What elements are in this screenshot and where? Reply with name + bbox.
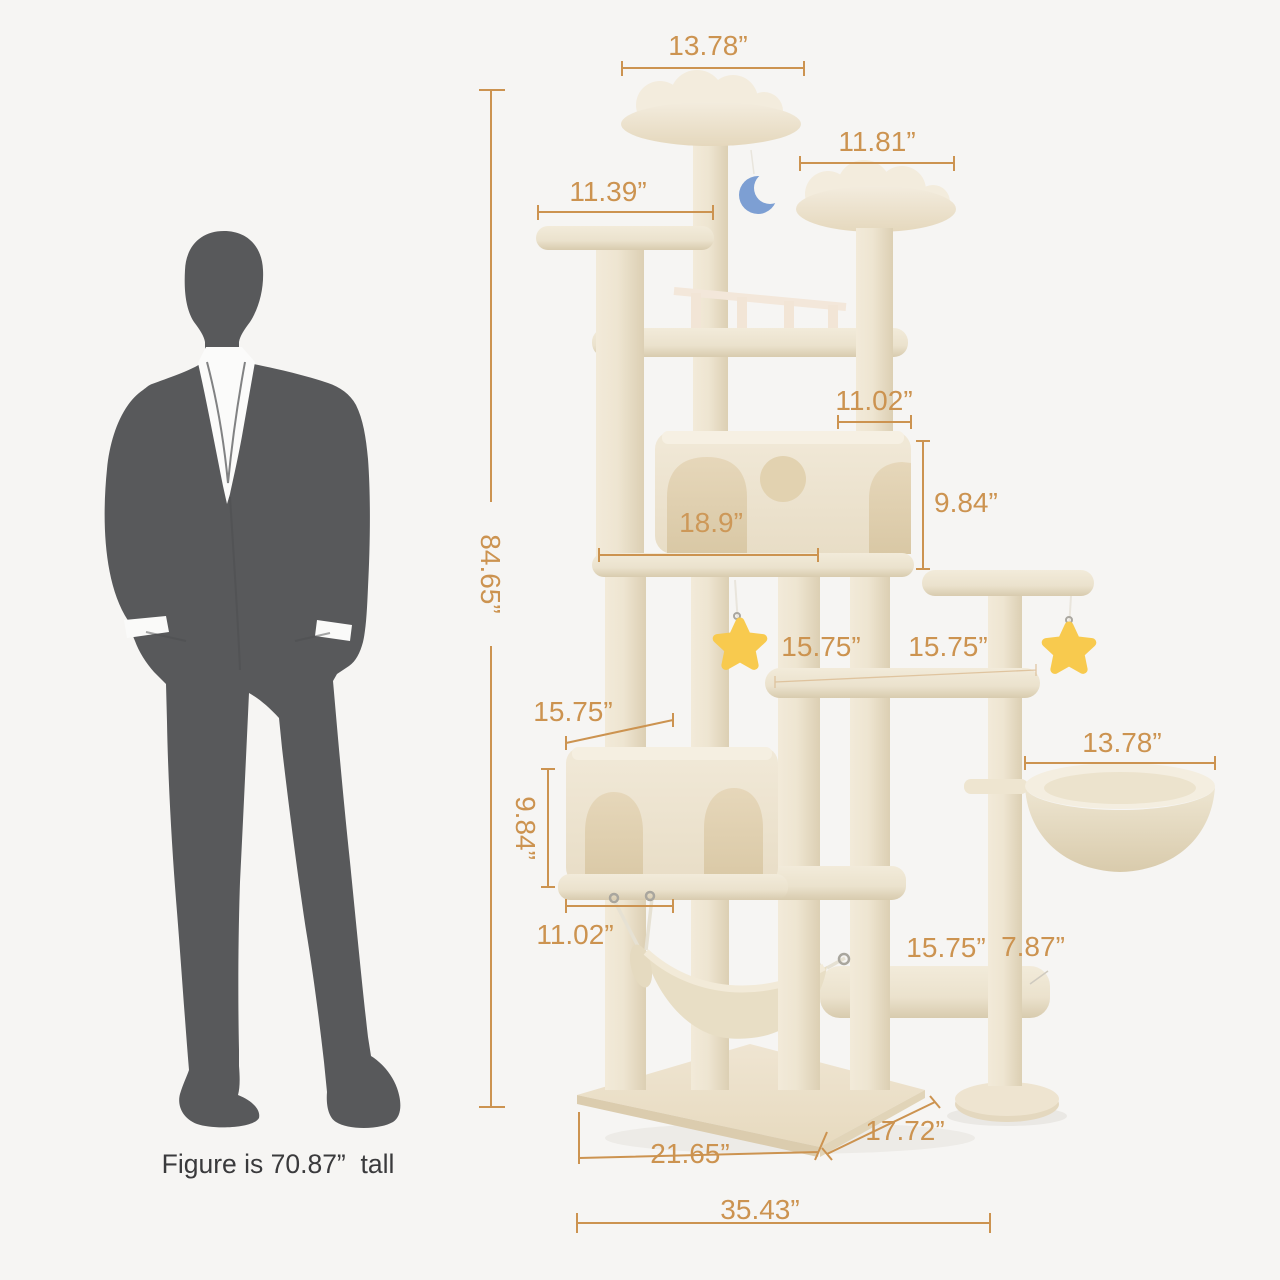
svg-text:13.78”: 13.78” [1082,727,1161,758]
svg-text:7.87”: 7.87” [1001,931,1065,962]
svg-text:11.02”: 11.02” [835,385,912,416]
svg-text:18.9”: 18.9” [679,507,743,538]
svg-text:11.81”: 11.81” [838,126,915,157]
svg-text:15.75”: 15.75” [781,631,860,662]
svg-text:15.75”: 15.75” [906,932,985,963]
svg-text:35.43”: 35.43” [720,1194,799,1225]
svg-text:21.65”: 21.65” [650,1138,729,1169]
svg-text:13.78”: 13.78” [668,30,747,61]
svg-text:9.84”: 9.84” [934,487,998,518]
svg-text:84.65”: 84.65” [475,534,506,613]
svg-text:11.39”: 11.39” [569,176,646,207]
svg-text:Figure is 70.87” tall: Figure is 70.87” tall [162,1149,395,1179]
svg-text:9.84”: 9.84” [510,796,541,860]
svg-text:15.75”: 15.75” [908,631,987,662]
svg-text:15.75”: 15.75” [533,696,612,727]
svg-text:11.02”: 11.02” [536,919,613,950]
